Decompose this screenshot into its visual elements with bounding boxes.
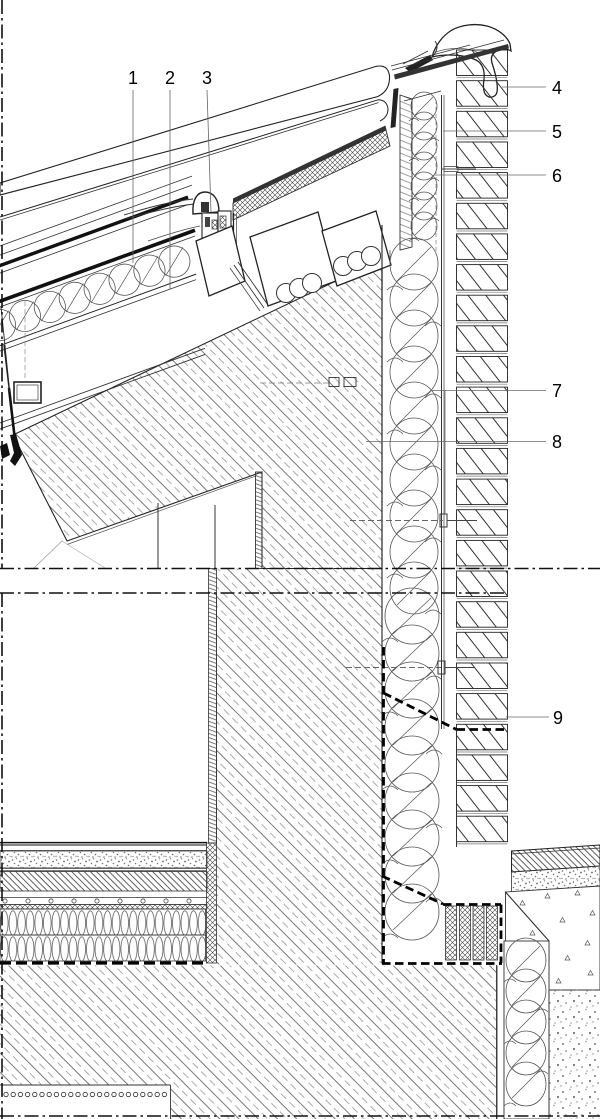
svg-text:6: 6 [552,166,562,186]
svg-text:9: 9 [553,708,563,728]
svg-text:2: 2 [165,68,175,88]
svg-text:1: 1 [128,68,138,88]
svg-text:8: 8 [552,432,562,452]
svg-text:7: 7 [552,381,562,401]
svg-text:4: 4 [552,78,562,98]
svg-text:3: 3 [202,68,212,88]
svg-text:5: 5 [552,122,562,142]
